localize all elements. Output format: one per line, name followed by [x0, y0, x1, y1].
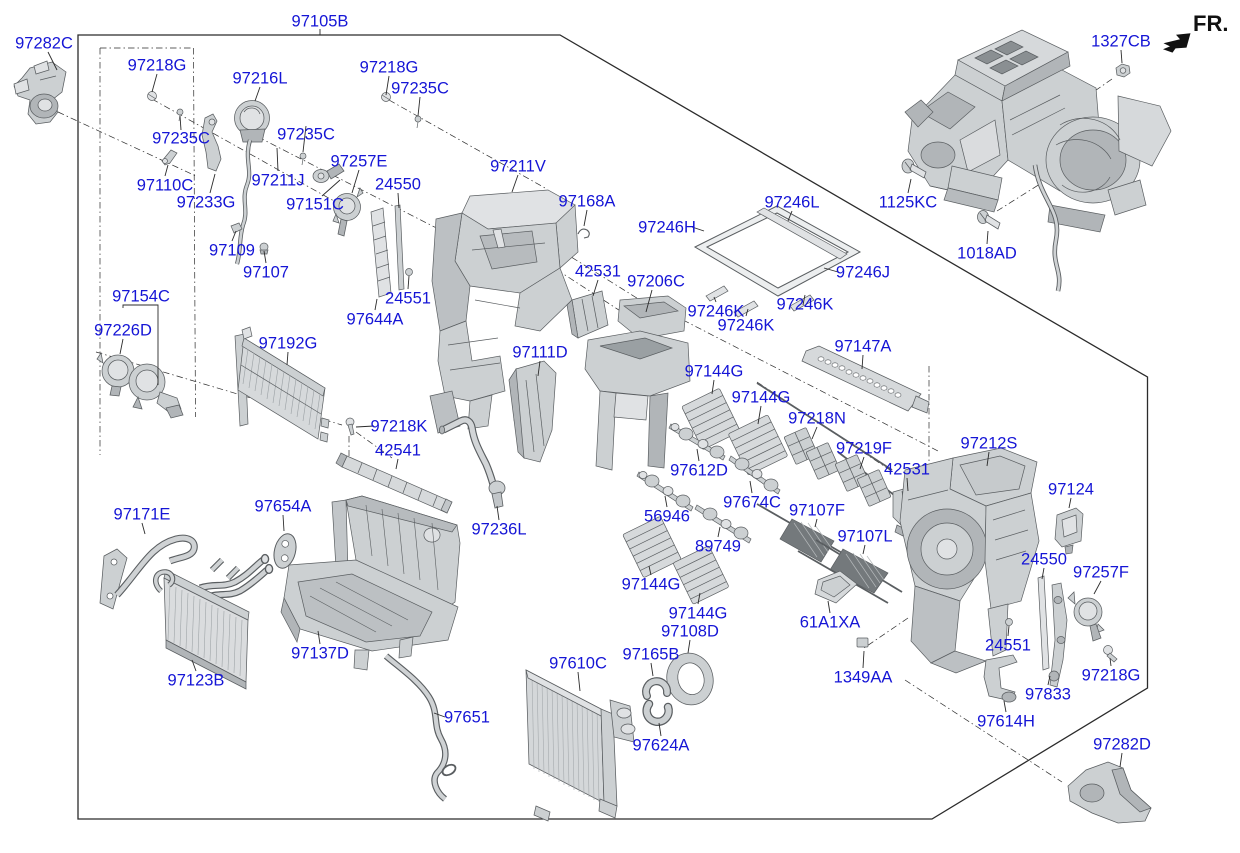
- svg-text:56946: 56946: [644, 508, 690, 526]
- svg-text:97144G: 97144G: [669, 605, 728, 623]
- svg-text:97235C: 97235C: [152, 130, 210, 148]
- svg-text:1349AA: 1349AA: [834, 669, 893, 687]
- svg-text:97105B: 97105B: [292, 13, 349, 31]
- svg-text:89749: 89749: [695, 538, 741, 556]
- svg-text:97107F: 97107F: [789, 502, 845, 520]
- svg-text:97282D: 97282D: [1093, 736, 1151, 754]
- svg-text:97246L: 97246L: [764, 194, 819, 212]
- svg-text:97137D: 97137D: [291, 645, 349, 663]
- svg-text:42531: 42531: [575, 263, 621, 281]
- svg-text:97109: 97109: [209, 242, 255, 260]
- svg-text:97674C: 97674C: [723, 494, 781, 512]
- svg-text:24551: 24551: [385, 290, 431, 308]
- svg-text:97165B: 97165B: [623, 646, 680, 664]
- svg-text:97211V: 97211V: [490, 158, 546, 176]
- svg-text:97246K: 97246K: [718, 317, 775, 335]
- svg-text:97624A: 97624A: [633, 737, 690, 755]
- svg-text:97206C: 97206C: [627, 273, 685, 291]
- svg-text:97218K: 97218K: [371, 418, 428, 436]
- svg-text:97233G: 97233G: [177, 194, 236, 212]
- svg-text:97218G: 97218G: [360, 59, 419, 77]
- svg-text:97218G: 97218G: [128, 57, 187, 75]
- svg-text:97151C: 97151C: [286, 196, 344, 214]
- svg-text:24550: 24550: [1021, 551, 1067, 569]
- svg-text:97246J: 97246J: [836, 264, 890, 282]
- svg-text:97211J: 97211J: [252, 172, 305, 190]
- svg-text:97226D: 97226D: [94, 322, 152, 340]
- svg-text:97171E: 97171E: [114, 506, 171, 524]
- svg-text:1125KC: 1125KC: [879, 194, 937, 212]
- svg-text:97144G: 97144G: [732, 389, 791, 407]
- svg-text:97144G: 97144G: [622, 576, 681, 594]
- svg-text:97108D: 97108D: [661, 623, 719, 641]
- svg-text:97216L: 97216L: [232, 70, 287, 88]
- svg-text:97257F: 97257F: [1073, 564, 1129, 582]
- svg-text:97257E: 97257E: [331, 153, 388, 171]
- svg-text:97612D: 97612D: [670, 462, 728, 480]
- svg-text:97124: 97124: [1048, 481, 1094, 499]
- svg-text:FR.: FR.: [1193, 11, 1228, 36]
- svg-text:97235C: 97235C: [391, 80, 449, 98]
- svg-text:97651: 97651: [444, 709, 490, 727]
- svg-text:97218N: 97218N: [788, 410, 846, 428]
- svg-text:61A1XA: 61A1XA: [800, 614, 861, 632]
- svg-text:97123B: 97123B: [168, 672, 225, 690]
- svg-text:97144G: 97144G: [685, 363, 744, 381]
- svg-text:97219F: 97219F: [836, 440, 892, 458]
- svg-text:97212S: 97212S: [961, 435, 1018, 453]
- svg-text:97168A: 97168A: [559, 193, 616, 211]
- svg-text:24550: 24550: [375, 176, 421, 194]
- svg-text:97192G: 97192G: [259, 335, 318, 353]
- svg-text:97644A: 97644A: [347, 311, 404, 329]
- svg-text:1018AD: 1018AD: [957, 245, 1017, 263]
- svg-text:97110C: 97110C: [137, 177, 194, 195]
- svg-text:97107: 97107: [243, 264, 289, 282]
- svg-text:42541: 42541: [375, 442, 421, 460]
- svg-text:97154C: 97154C: [112, 288, 170, 306]
- svg-text:97107L: 97107L: [837, 528, 892, 546]
- svg-text:1327CB: 1327CB: [1091, 33, 1151, 51]
- svg-text:97246K: 97246K: [777, 296, 834, 314]
- svg-text:97833: 97833: [1025, 686, 1071, 704]
- svg-text:97147A: 97147A: [835, 338, 892, 356]
- svg-text:97111D: 97111D: [512, 344, 567, 362]
- svg-text:97218G: 97218G: [1082, 667, 1141, 685]
- svg-text:24551: 24551: [985, 637, 1031, 655]
- svg-text:97235C: 97235C: [277, 126, 335, 144]
- svg-text:97610C: 97610C: [549, 655, 607, 673]
- svg-text:97614H: 97614H: [977, 713, 1035, 731]
- svg-text:42531: 42531: [884, 461, 930, 479]
- svg-text:97236L: 97236L: [471, 521, 526, 539]
- svg-text:97654A: 97654A: [255, 498, 312, 516]
- svg-text:97246H: 97246H: [638, 219, 696, 237]
- svg-text:97282C: 97282C: [15, 35, 73, 53]
